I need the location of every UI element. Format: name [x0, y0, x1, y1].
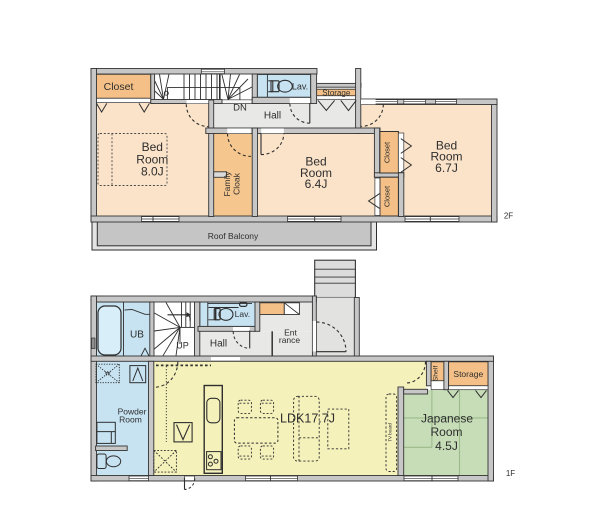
svg-text:Closet: Closet [382, 185, 391, 207]
svg-text:1F: 1F [506, 469, 515, 478]
svg-text:Cloak: Cloak [232, 172, 242, 194]
svg-text:Lav.: Lav. [292, 82, 308, 92]
svg-text:Shelf: Shelf [433, 366, 440, 382]
svg-text:Room: Room [430, 425, 462, 439]
svg-text:Storage: Storage [453, 369, 483, 379]
svg-text:DN: DN [233, 103, 247, 114]
svg-text:Room: Room [119, 415, 142, 425]
svg-text:UB: UB [130, 330, 144, 341]
svg-text:W: W [105, 372, 111, 378]
svg-text:8.0J: 8.0J [141, 165, 164, 179]
svg-text:Hall: Hall [210, 339, 227, 350]
svg-text:Family: Family [222, 171, 232, 197]
svg-text:rance: rance [279, 335, 301, 345]
svg-text:Closet: Closet [104, 81, 134, 93]
svg-text:Lav.: Lav. [235, 309, 250, 319]
svg-text:Hall: Hall [264, 111, 281, 122]
svg-text:Roof Balcony: Roof Balcony [208, 231, 259, 241]
svg-text:6.7J: 6.7J [435, 161, 458, 175]
svg-text:Storage: Storage [322, 88, 351, 97]
svg-text:Closet: Closet [382, 141, 391, 163]
svg-text:UP: UP [176, 341, 189, 351]
svg-text:TV board: TV board [388, 423, 393, 442]
svg-text:4.5J: 4.5J [435, 439, 458, 453]
svg-text:6.4J: 6.4J [305, 177, 328, 191]
svg-text:2F: 2F [504, 212, 513, 221]
svg-text:LDK17.7J: LDK17.7J [280, 412, 335, 426]
svg-text:Japanese: Japanese [421, 412, 473, 426]
